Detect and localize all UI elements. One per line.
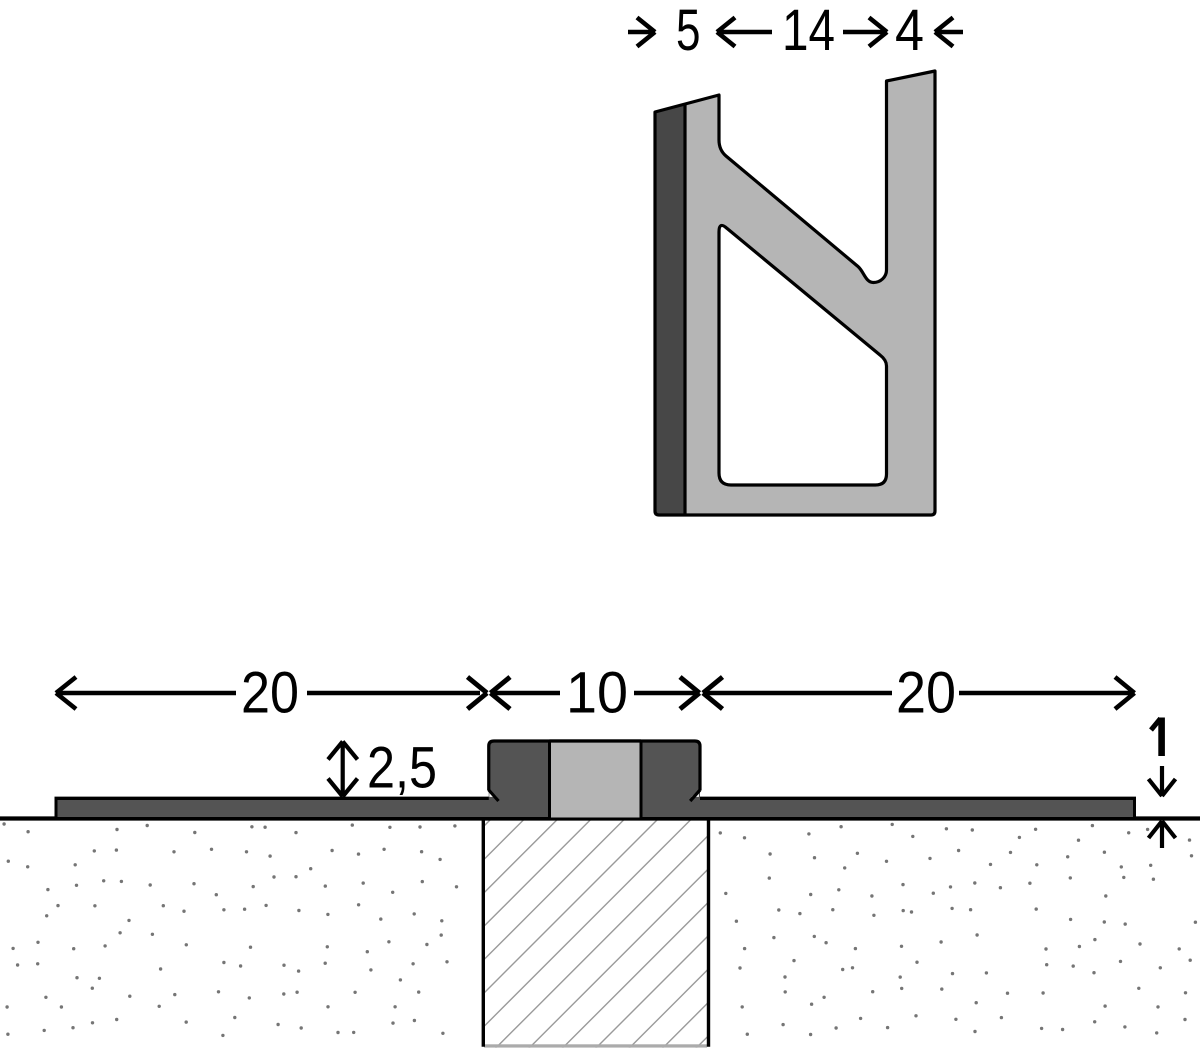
svg-text:2,5: 2,5 bbox=[367, 736, 437, 801]
svg-text:5: 5 bbox=[676, 0, 701, 63]
svg-text:14: 14 bbox=[782, 0, 835, 63]
svg-text:20: 20 bbox=[896, 661, 956, 726]
svg-text:4: 4 bbox=[895, 0, 924, 63]
svg-text:20: 20 bbox=[241, 661, 299, 726]
svg-text:10: 10 bbox=[566, 661, 628, 726]
